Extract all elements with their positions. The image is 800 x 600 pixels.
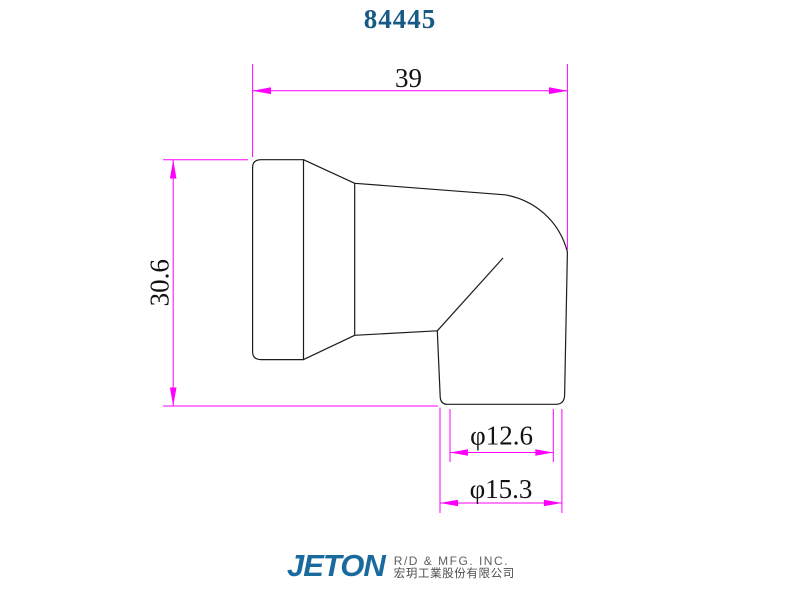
dim-inner-dia-group: φ12.6 (450, 409, 553, 462)
dim-height-arrow-bottom (170, 388, 177, 407)
drawing-sheet: 84445 39 30.6 (0, 0, 800, 600)
company-name-zh: 宏玥工業股份有限公司 (394, 568, 515, 581)
dim-inner-dia-label: φ12.6 (470, 421, 533, 451)
dim-inner-dia-arrow-left (450, 449, 468, 456)
dim-outer-dia-arrow-left (440, 500, 458, 507)
part-outline (253, 160, 568, 405)
dim-inner-dia-arrow-right (535, 449, 553, 456)
inner-corner-line (437, 258, 503, 331)
dim-width-arrow-right (549, 87, 567, 94)
company-name-block: R/D & MFG. INC. 宏玥工業股份有限公司 (394, 548, 515, 581)
footer-logo-block: JETON R/D & MFG. INC. 宏玥工業股份有限公司 (287, 548, 515, 584)
part-drawing: 39 30.6 φ12.6 φ15.3 (0, 0, 800, 600)
dim-width-arrow-left (253, 87, 271, 94)
dim-width-label: 39 (395, 63, 422, 93)
dim-height-arrow-top (170, 160, 177, 179)
dim-outer-dia-label: φ15.3 (470, 474, 533, 504)
part-outline-group (253, 160, 568, 405)
company-name-en: R/D & MFG. INC. (394, 555, 515, 568)
dim-outer-dia-arrow-right (544, 500, 562, 507)
dim-height-group: 30.6 (145, 160, 439, 406)
jeton-logo: JETON (287, 548, 385, 584)
dim-width-group: 39 (253, 63, 568, 250)
dim-height-label: 30.6 (145, 259, 175, 306)
